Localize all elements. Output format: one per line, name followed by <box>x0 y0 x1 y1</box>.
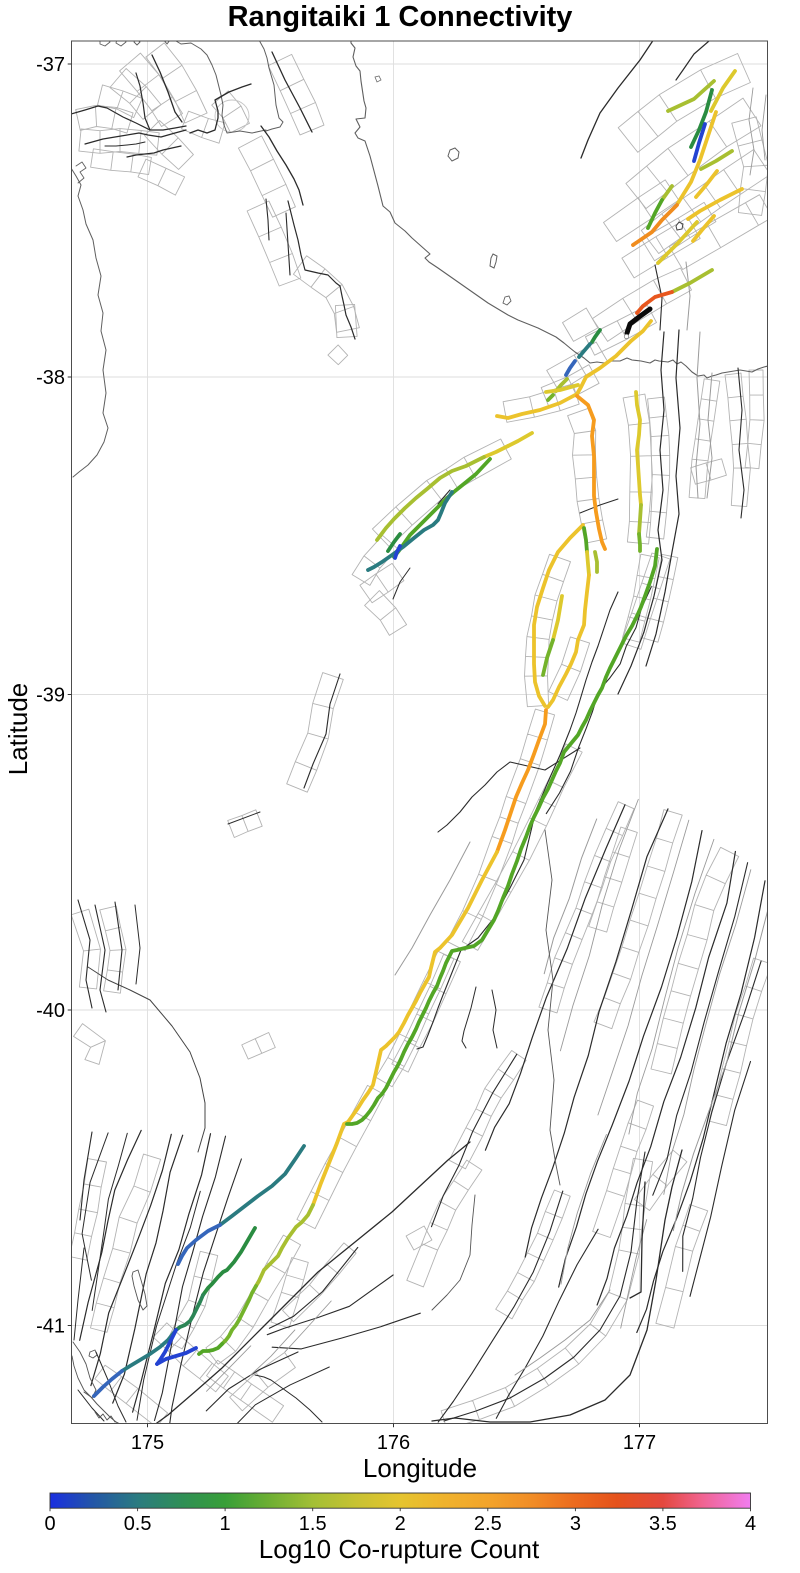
svg-text:Rangitaiki 1 Connectivity: Rangitaiki 1 Connectivity <box>228 1 573 33</box>
svg-text:177: 177 <box>623 1432 656 1454</box>
svg-text:3.5: 3.5 <box>649 1513 677 1535</box>
svg-text:3: 3 <box>570 1513 581 1535</box>
svg-text:1.5: 1.5 <box>299 1513 327 1535</box>
svg-text:0: 0 <box>44 1513 55 1535</box>
svg-text:Latitude: Latitude <box>3 683 33 776</box>
svg-text:-39: -39 <box>36 685 65 707</box>
svg-text:-41: -41 <box>36 1316 65 1338</box>
svg-text:Log10 Co-rupture Count: Log10 Co-rupture Count <box>259 1534 540 1564</box>
svg-text:-37: -37 <box>36 54 65 76</box>
svg-text:176: 176 <box>377 1432 410 1454</box>
svg-text:-38: -38 <box>36 367 65 389</box>
svg-text:1: 1 <box>220 1513 231 1535</box>
svg-text:-40: -40 <box>36 1000 65 1022</box>
svg-text:0.5: 0.5 <box>124 1513 152 1535</box>
svg-text:175: 175 <box>131 1432 164 1454</box>
svg-text:4: 4 <box>745 1513 756 1535</box>
svg-text:Longitude: Longitude <box>363 1453 477 1483</box>
svg-text:2: 2 <box>395 1513 406 1535</box>
svg-text:2.5: 2.5 <box>474 1513 502 1535</box>
